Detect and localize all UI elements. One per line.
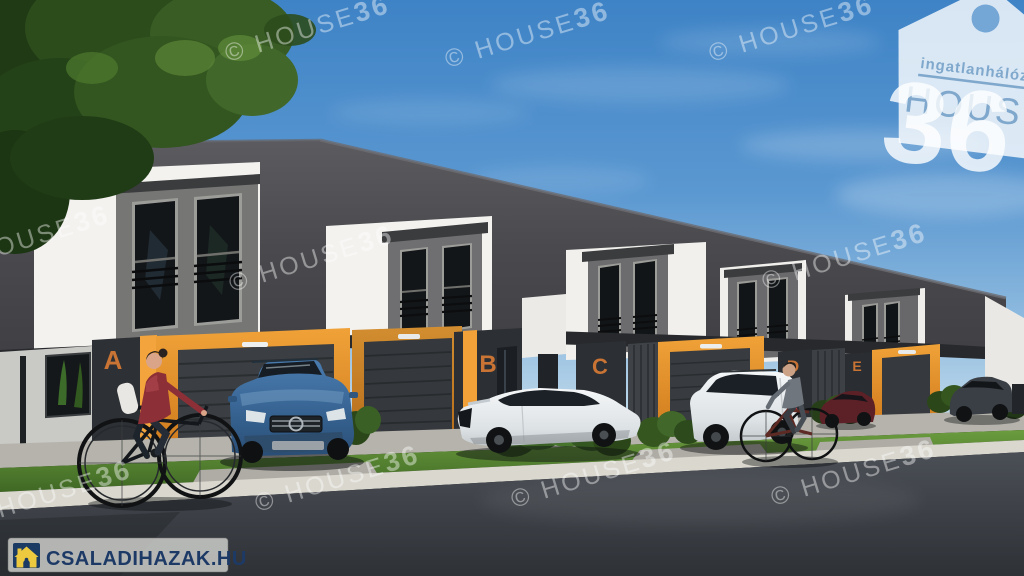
garage-lamp [700,344,722,349]
garage-lamp [898,350,916,354]
csaladihazak-logo: CSALADIHAZAK.HU [8,538,247,572]
house-icon [13,543,40,568]
unit-letter-b: B [479,351,496,378]
unit-letter-a: A [104,345,123,375]
scene-canvas: A B C [0,0,1024,576]
house36-number: 36 [876,56,1019,199]
garage-lamp [242,342,268,347]
real-estate-render-image: A B C [0,0,1024,576]
unit-letter-c: C [592,354,608,379]
csaladihazak-label: CSALADIHAZAK.HU [46,548,247,570]
garage-lamp [398,334,420,339]
unit-letter-e: E [852,358,861,374]
